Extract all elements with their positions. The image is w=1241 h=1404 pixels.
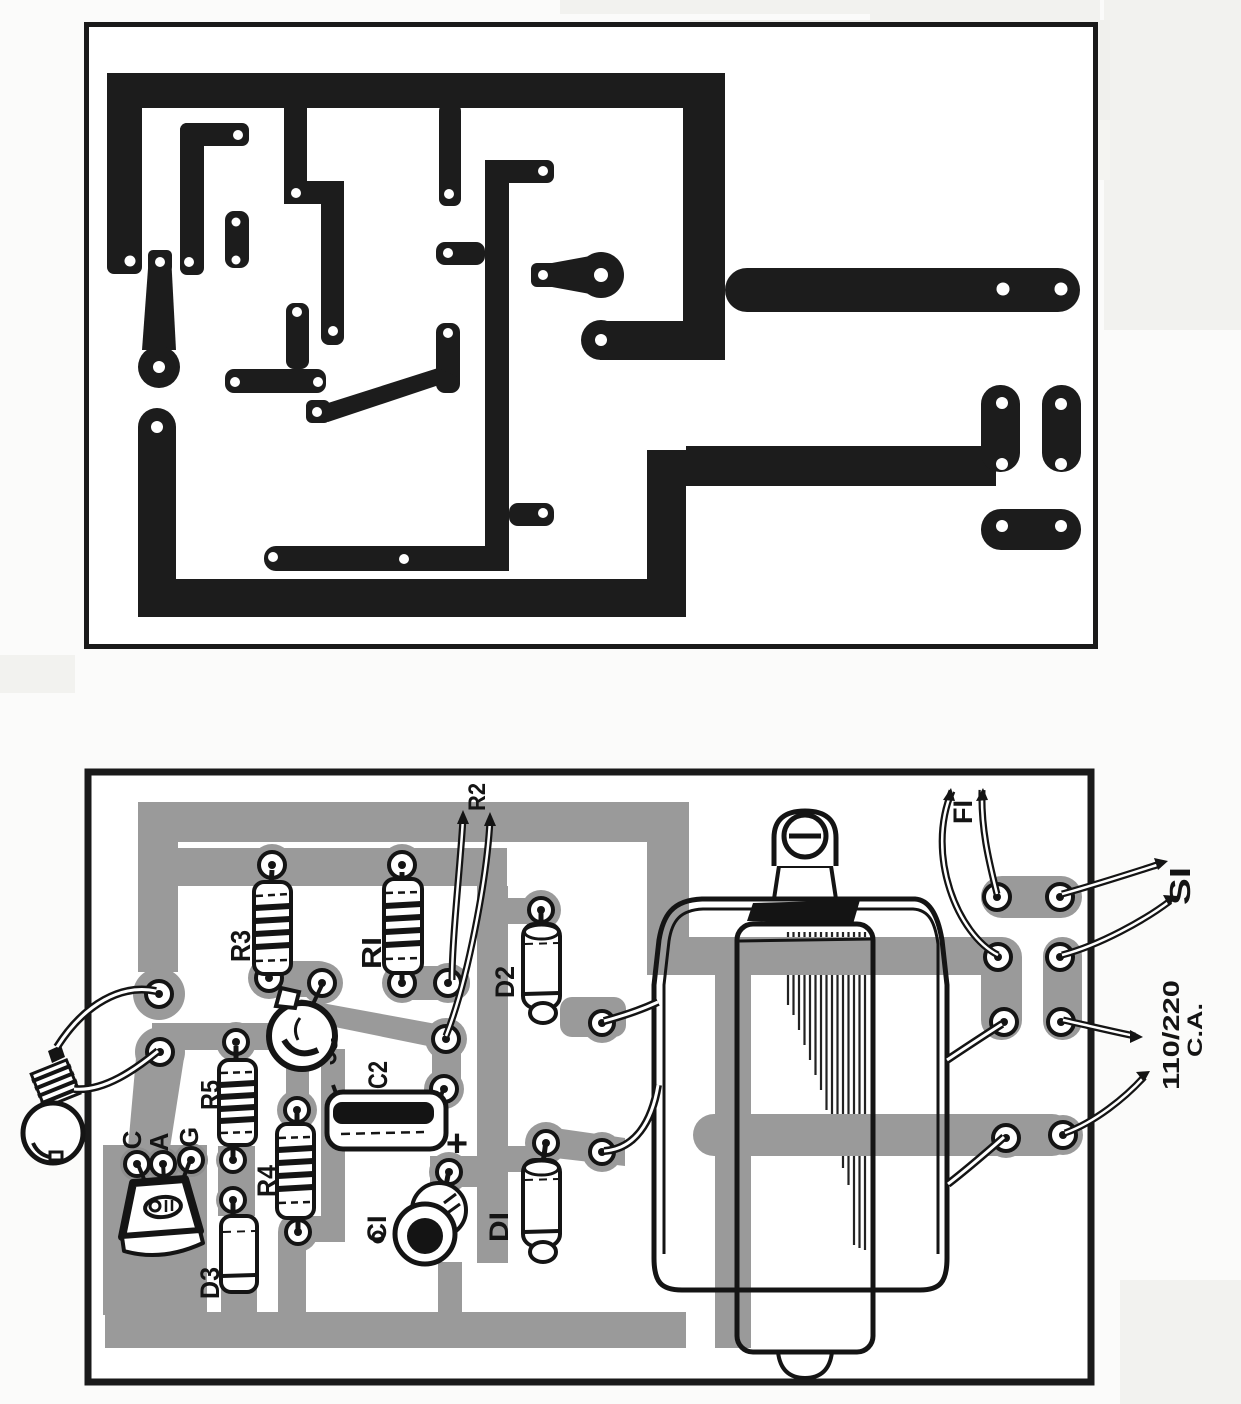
svg-text:DI: DI bbox=[484, 1212, 514, 1242]
svg-text:C: C bbox=[117, 1130, 147, 1149]
svg-text:110/220: 110/220 bbox=[1158, 980, 1184, 1090]
svg-text:R5: R5 bbox=[195, 1080, 225, 1110]
svg-text:R3: R3 bbox=[225, 930, 256, 962]
svg-text:CI: CI bbox=[362, 1216, 392, 1243]
svg-text:C.A.: C.A. bbox=[1184, 1003, 1207, 1057]
svg-text:FI: FI bbox=[948, 800, 978, 824]
svg-text:+: + bbox=[446, 1123, 468, 1165]
svg-text:SI: SI bbox=[1165, 867, 1197, 905]
svg-text:G: G bbox=[174, 1127, 204, 1147]
svg-text:A: A bbox=[144, 1132, 174, 1151]
svg-text:R4: R4 bbox=[252, 1165, 282, 1197]
svg-text:C2: C2 bbox=[363, 1061, 393, 1089]
svg-text:D3: D3 bbox=[195, 1267, 225, 1299]
svg-text:RI: RI bbox=[356, 937, 387, 969]
svg-text:R2: R2 bbox=[464, 783, 491, 811]
svg-text:D2: D2 bbox=[490, 966, 520, 998]
